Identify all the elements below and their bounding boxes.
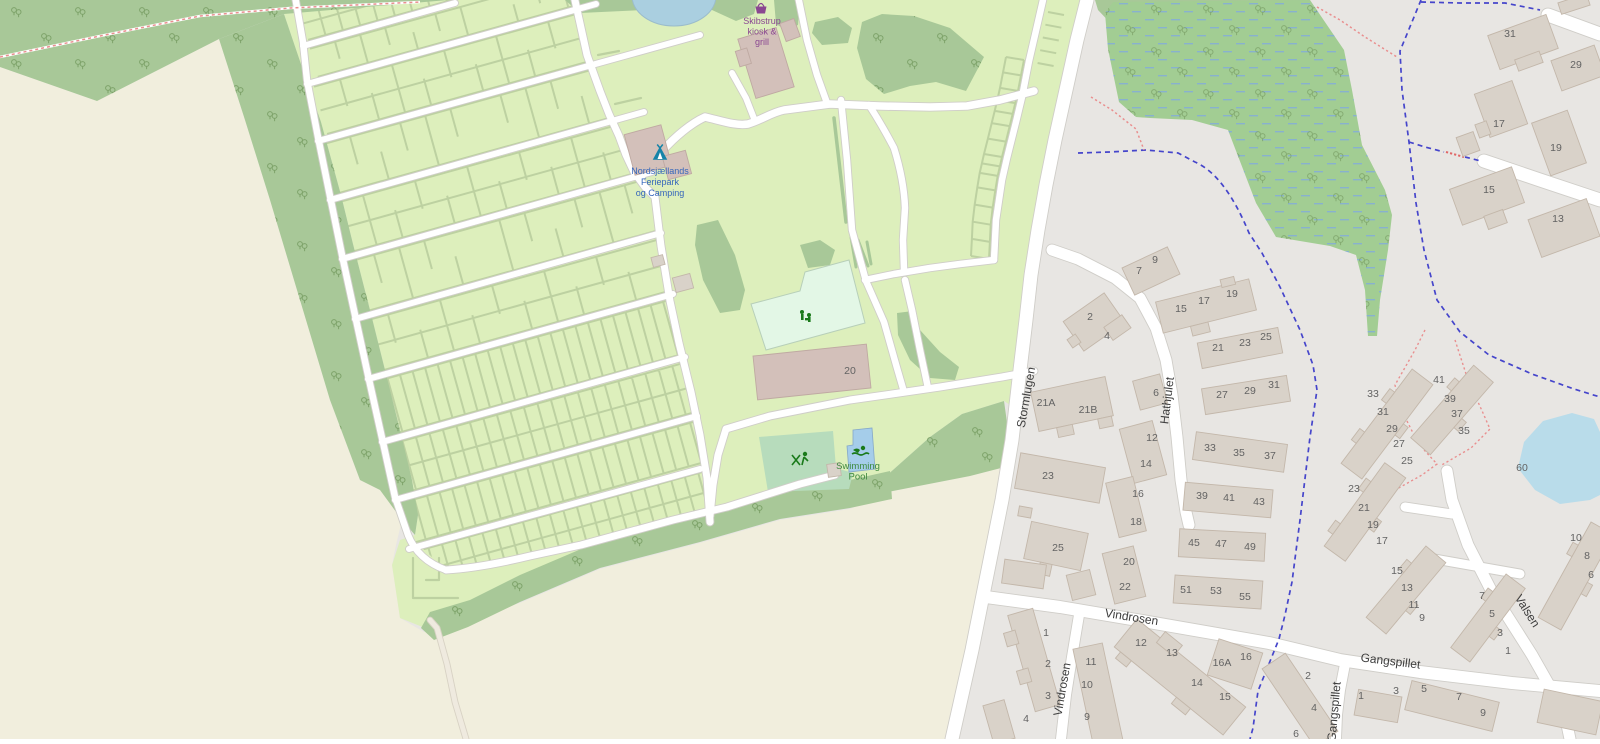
svg-text:31: 31	[1268, 379, 1280, 391]
svg-text:29: 29	[1386, 423, 1398, 435]
svg-text:14: 14	[1191, 677, 1203, 689]
svg-text:grill: grill	[755, 37, 769, 47]
svg-text:4: 4	[1023, 713, 1029, 725]
svg-text:3: 3	[1393, 685, 1399, 697]
svg-text:4: 4	[1311, 702, 1317, 714]
svg-text:25: 25	[1260, 331, 1272, 343]
svg-text:3: 3	[1045, 690, 1051, 702]
svg-text:29: 29	[1570, 59, 1582, 71]
svg-text:5: 5	[1489, 608, 1495, 620]
svg-text:6: 6	[1588, 569, 1594, 581]
svg-text:18: 18	[1130, 516, 1142, 528]
svg-text:31: 31	[1377, 406, 1389, 418]
svg-text:17: 17	[1493, 118, 1505, 130]
svg-text:1: 1	[1358, 690, 1364, 702]
svg-text:17: 17	[1376, 535, 1388, 547]
svg-text:23: 23	[1348, 483, 1360, 495]
svg-text:19: 19	[1367, 519, 1379, 531]
svg-text:og Camping: og Camping	[636, 188, 685, 198]
svg-text:37: 37	[1264, 450, 1276, 462]
svg-text:Swimming: Swimming	[836, 461, 880, 472]
svg-text:51: 51	[1180, 584, 1192, 596]
svg-text:21B: 21B	[1079, 404, 1098, 416]
svg-text:33: 33	[1367, 388, 1379, 400]
svg-text:13: 13	[1166, 647, 1178, 659]
svg-text:20: 20	[844, 365, 856, 377]
svg-text:39: 39	[1196, 490, 1208, 502]
svg-text:9: 9	[1419, 612, 1425, 624]
svg-text:9: 9	[1152, 254, 1158, 266]
svg-text:27: 27	[1393, 438, 1405, 450]
svg-text:19: 19	[1226, 288, 1238, 300]
svg-text:25: 25	[1401, 455, 1413, 467]
svg-text:12: 12	[1135, 637, 1147, 649]
svg-text:1: 1	[1043, 627, 1049, 639]
svg-text:6: 6	[1293, 728, 1299, 739]
svg-text:20: 20	[1123, 556, 1135, 568]
svg-text:15: 15	[1391, 565, 1403, 577]
svg-text:7: 7	[1479, 590, 1485, 602]
svg-text:41: 41	[1223, 492, 1235, 504]
svg-text:2: 2	[1045, 658, 1051, 670]
svg-text:4: 4	[1104, 330, 1110, 342]
svg-text:43: 43	[1253, 496, 1265, 508]
svg-text:45: 45	[1188, 537, 1200, 549]
svg-text:21: 21	[1358, 502, 1370, 514]
svg-text:Pool: Pool	[848, 472, 867, 483]
svg-text:35: 35	[1233, 447, 1245, 459]
svg-text:13: 13	[1552, 213, 1564, 225]
svg-text:8: 8	[1584, 550, 1590, 562]
svg-text:41: 41	[1433, 374, 1445, 386]
svg-text:60: 60	[1516, 462, 1528, 474]
svg-text:21: 21	[1212, 342, 1224, 354]
svg-text:Feriepark: Feriepark	[641, 177, 680, 187]
svg-text:15: 15	[1483, 184, 1495, 196]
svg-text:10: 10	[1570, 532, 1582, 544]
svg-text:9: 9	[1480, 707, 1486, 719]
svg-text:10: 10	[1081, 679, 1093, 691]
svg-text:23: 23	[1042, 470, 1054, 482]
svg-text:19: 19	[1550, 142, 1562, 154]
svg-text:Skibstrup: Skibstrup	[743, 16, 781, 26]
svg-text:47: 47	[1215, 538, 1227, 550]
svg-text:53: 53	[1210, 585, 1222, 597]
svg-text:11: 11	[1086, 656, 1097, 668]
svg-text:37: 37	[1451, 408, 1463, 420]
svg-text:9: 9	[1084, 711, 1090, 723]
svg-text:7: 7	[1136, 265, 1142, 277]
svg-text:21A: 21A	[1037, 397, 1056, 409]
svg-text:55: 55	[1239, 591, 1251, 603]
svg-text:29: 29	[1244, 385, 1256, 397]
svg-text:2: 2	[1087, 311, 1093, 323]
svg-text:16: 16	[1132, 488, 1144, 500]
svg-text:23: 23	[1239, 337, 1251, 349]
svg-text:Nordsjællands: Nordsjællands	[631, 166, 689, 176]
svg-text:25: 25	[1052, 542, 1064, 554]
svg-text:49: 49	[1244, 541, 1256, 553]
svg-text:31: 31	[1504, 28, 1516, 40]
svg-text:17: 17	[1198, 295, 1210, 307]
svg-text:6: 6	[1153, 387, 1159, 399]
svg-text:35: 35	[1458, 425, 1470, 437]
svg-text:16A: 16A	[1213, 657, 1232, 669]
svg-text:5: 5	[1421, 683, 1427, 695]
svg-text:13: 13	[1401, 582, 1413, 594]
svg-text:15: 15	[1219, 691, 1231, 703]
svg-text:16: 16	[1240, 651, 1252, 663]
svg-text:3: 3	[1497, 627, 1503, 639]
svg-text:33: 33	[1204, 442, 1216, 454]
svg-text:22: 22	[1119, 581, 1131, 593]
svg-text:11: 11	[1409, 599, 1420, 611]
svg-text:27: 27	[1216, 389, 1228, 401]
svg-text:12: 12	[1146, 432, 1158, 444]
svg-text:15: 15	[1175, 303, 1187, 315]
svg-text:7: 7	[1456, 691, 1462, 703]
svg-text:39: 39	[1444, 393, 1456, 405]
svg-text:2: 2	[1305, 670, 1311, 682]
svg-text:kiosk &: kiosk &	[747, 27, 776, 37]
svg-text:1: 1	[1505, 645, 1511, 657]
svg-text:14: 14	[1140, 458, 1152, 470]
